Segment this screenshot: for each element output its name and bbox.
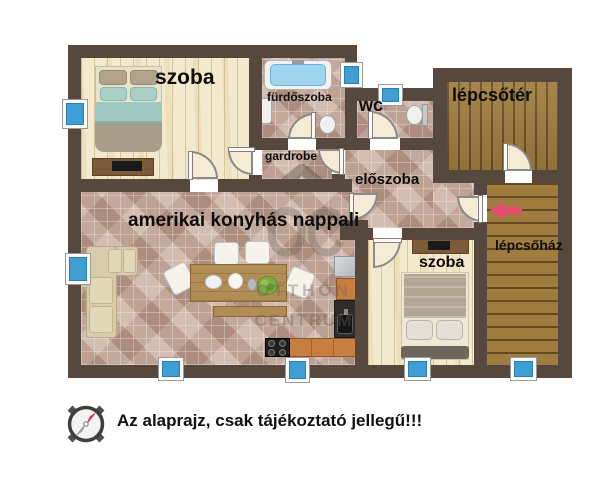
compass-icon	[62, 400, 110, 448]
chair-icon	[214, 242, 239, 265]
wall-stairwell-left	[433, 68, 447, 183]
window-szoba1-left	[66, 103, 84, 125]
room-label-wc: wc	[359, 95, 383, 116]
window-livingroom-left	[69, 257, 87, 281]
room-label-szoba1: szoba	[155, 66, 215, 90]
wall-staircase-left-b	[474, 222, 487, 365]
window-wc-top	[382, 88, 399, 102]
disclaimer-text: Az alaprajz, csak tájékoztató jellegű!!!	[117, 411, 422, 431]
tv-icon	[428, 241, 450, 250]
sofa-cushion	[108, 249, 122, 273]
bed-pillow	[406, 320, 433, 340]
door-leaf	[373, 238, 402, 243]
window-kitchen-bottom	[289, 361, 306, 379]
bed-pillow	[130, 87, 157, 101]
stove-burner	[279, 349, 286, 356]
wall-right	[558, 68, 572, 378]
wall-szoba1-bottom-a	[68, 179, 190, 192]
room-label-lepcsohaz: lépcsőház	[495, 237, 563, 253]
floorplan-image: OC OTTHON CENTRUM szoba fürdőszoba wc lé…	[0, 0, 607, 500]
door-leaf	[478, 195, 483, 223]
bed-pillow	[99, 70, 127, 85]
window-bathroom-right	[344, 66, 359, 84]
stove-burner	[279, 340, 286, 347]
room-label-furdoszoba: fürdőszoba	[267, 90, 332, 104]
door-leaf	[311, 112, 316, 139]
faucet-icon	[344, 309, 348, 315]
wall-stairwell-bottom-a	[433, 170, 505, 183]
wall-bath-bottom-c	[400, 138, 447, 150]
kitchen-counter-icon	[288, 338, 356, 357]
window-szoba2-bottom	[408, 361, 427, 377]
plate-icon	[205, 275, 222, 289]
faucet-icon	[292, 60, 304, 64]
bed-pillow	[100, 87, 127, 101]
watermark-roof-icon	[272, 164, 332, 192]
door-leaf	[339, 148, 344, 175]
toilet-icon	[406, 105, 423, 125]
bed-blanket	[404, 274, 466, 318]
room-label-gardrobe: gardrobe	[265, 149, 317, 163]
tv-icon	[112, 161, 142, 171]
wall-left	[68, 45, 81, 378]
bathtub-water	[270, 64, 326, 86]
window-staircase-bottom	[514, 361, 533, 377]
wall-staircase-left-a	[474, 183, 487, 195]
sofa-cushion	[89, 306, 113, 333]
kitchen-sink-bowl	[337, 314, 353, 334]
door-leaf	[503, 143, 508, 171]
wall-stairwell-top	[433, 68, 572, 82]
toilet-icon	[319, 115, 336, 134]
stove-burner	[268, 349, 275, 356]
bed-pillow	[436, 320, 463, 340]
plant-icon	[257, 276, 278, 295]
wall-top	[68, 45, 357, 58]
candles-icon	[247, 278, 257, 291]
wall-bottom	[68, 365, 572, 378]
wall-szoba2-left	[355, 228, 368, 365]
fridge-icon	[334, 256, 357, 277]
room-label-lepcsoter: lépcsőtér	[452, 85, 532, 106]
room-label-szoba2: szoba	[419, 254, 464, 272]
room-label-eloszoba: előszoba	[355, 171, 419, 188]
sofa-cushion	[123, 249, 136, 273]
sofa-cushion	[89, 277, 113, 304]
bed-blanket	[95, 123, 162, 152]
door-leaf	[228, 147, 255, 152]
window-livingroom-bottom	[162, 361, 180, 377]
bed-blanket	[95, 102, 162, 123]
chair-icon	[245, 241, 270, 264]
flowers-icon	[228, 273, 243, 289]
door-leaf	[188, 151, 193, 180]
bed-pillow	[130, 70, 158, 85]
kitchen-cabinet-icon	[336, 278, 356, 300]
room-label-nappali: amerikai konyhás nappali	[128, 210, 359, 232]
wall-stairwell-bottom-b	[532, 170, 558, 183]
stove-burner	[268, 340, 275, 347]
bench-icon	[213, 306, 287, 317]
wall-szoba1-right-a	[249, 58, 262, 150]
